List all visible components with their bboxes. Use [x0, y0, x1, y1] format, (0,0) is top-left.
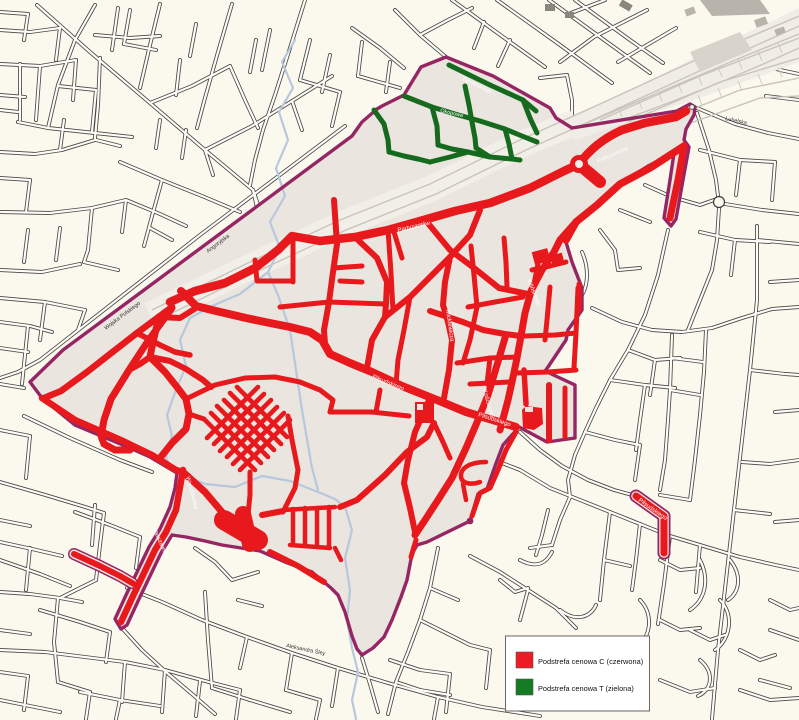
svg-text:Podstrefa cenowa C (czerwona): Podstrefa cenowa C (czerwona) [538, 657, 643, 666]
svg-text:Podstrefa cenowa T (zielona): Podstrefa cenowa T (zielona) [538, 684, 634, 693]
